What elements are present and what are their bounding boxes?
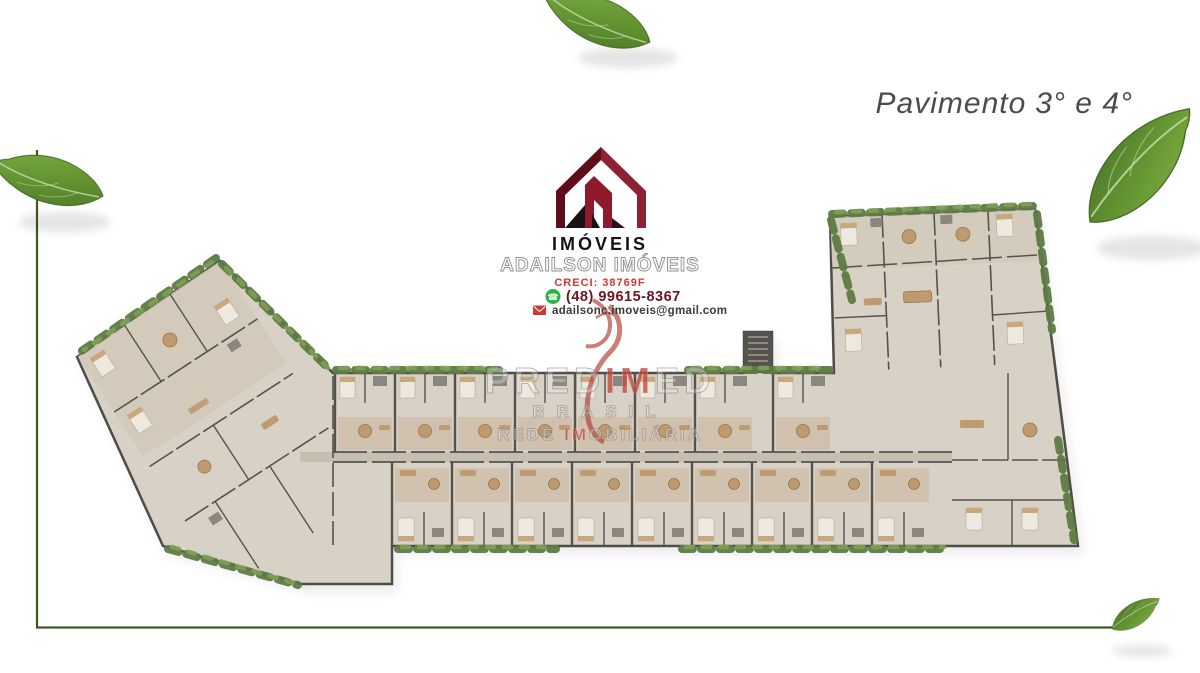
watermark-brasil: BRASIL xyxy=(532,402,667,421)
svg-text:☎: ☎ xyxy=(547,292,558,302)
watermark-rede-imobiliaria: REDE IMOBILIÁRIA xyxy=(497,425,703,444)
marketing-flyer: PREDIMED BRASIL REDE IMOBILIÁRIA IMÓVEIS… xyxy=(0,0,1200,673)
brand-name: ADAILSON IMÓVEIS xyxy=(500,254,700,276)
floor-title: Pavimento3° e 4° xyxy=(876,87,1133,120)
brand-imoveis-label: IMÓVEIS xyxy=(552,233,648,254)
creci-number: CRECI: 38769F xyxy=(554,277,645,289)
phone-number: (48) 99615-8367 xyxy=(566,289,681,305)
watermark-predimed: PREDIMED xyxy=(485,360,715,401)
email-address: adailsonc.imoveis@gmail.com xyxy=(552,305,727,317)
email-icon xyxy=(533,306,546,316)
flyer-canvas: PREDIMED BRASIL REDE IMOBILIÁRIA IMÓVEIS… xyxy=(0,0,1200,673)
whatsapp-icon: ☎ xyxy=(546,289,561,304)
